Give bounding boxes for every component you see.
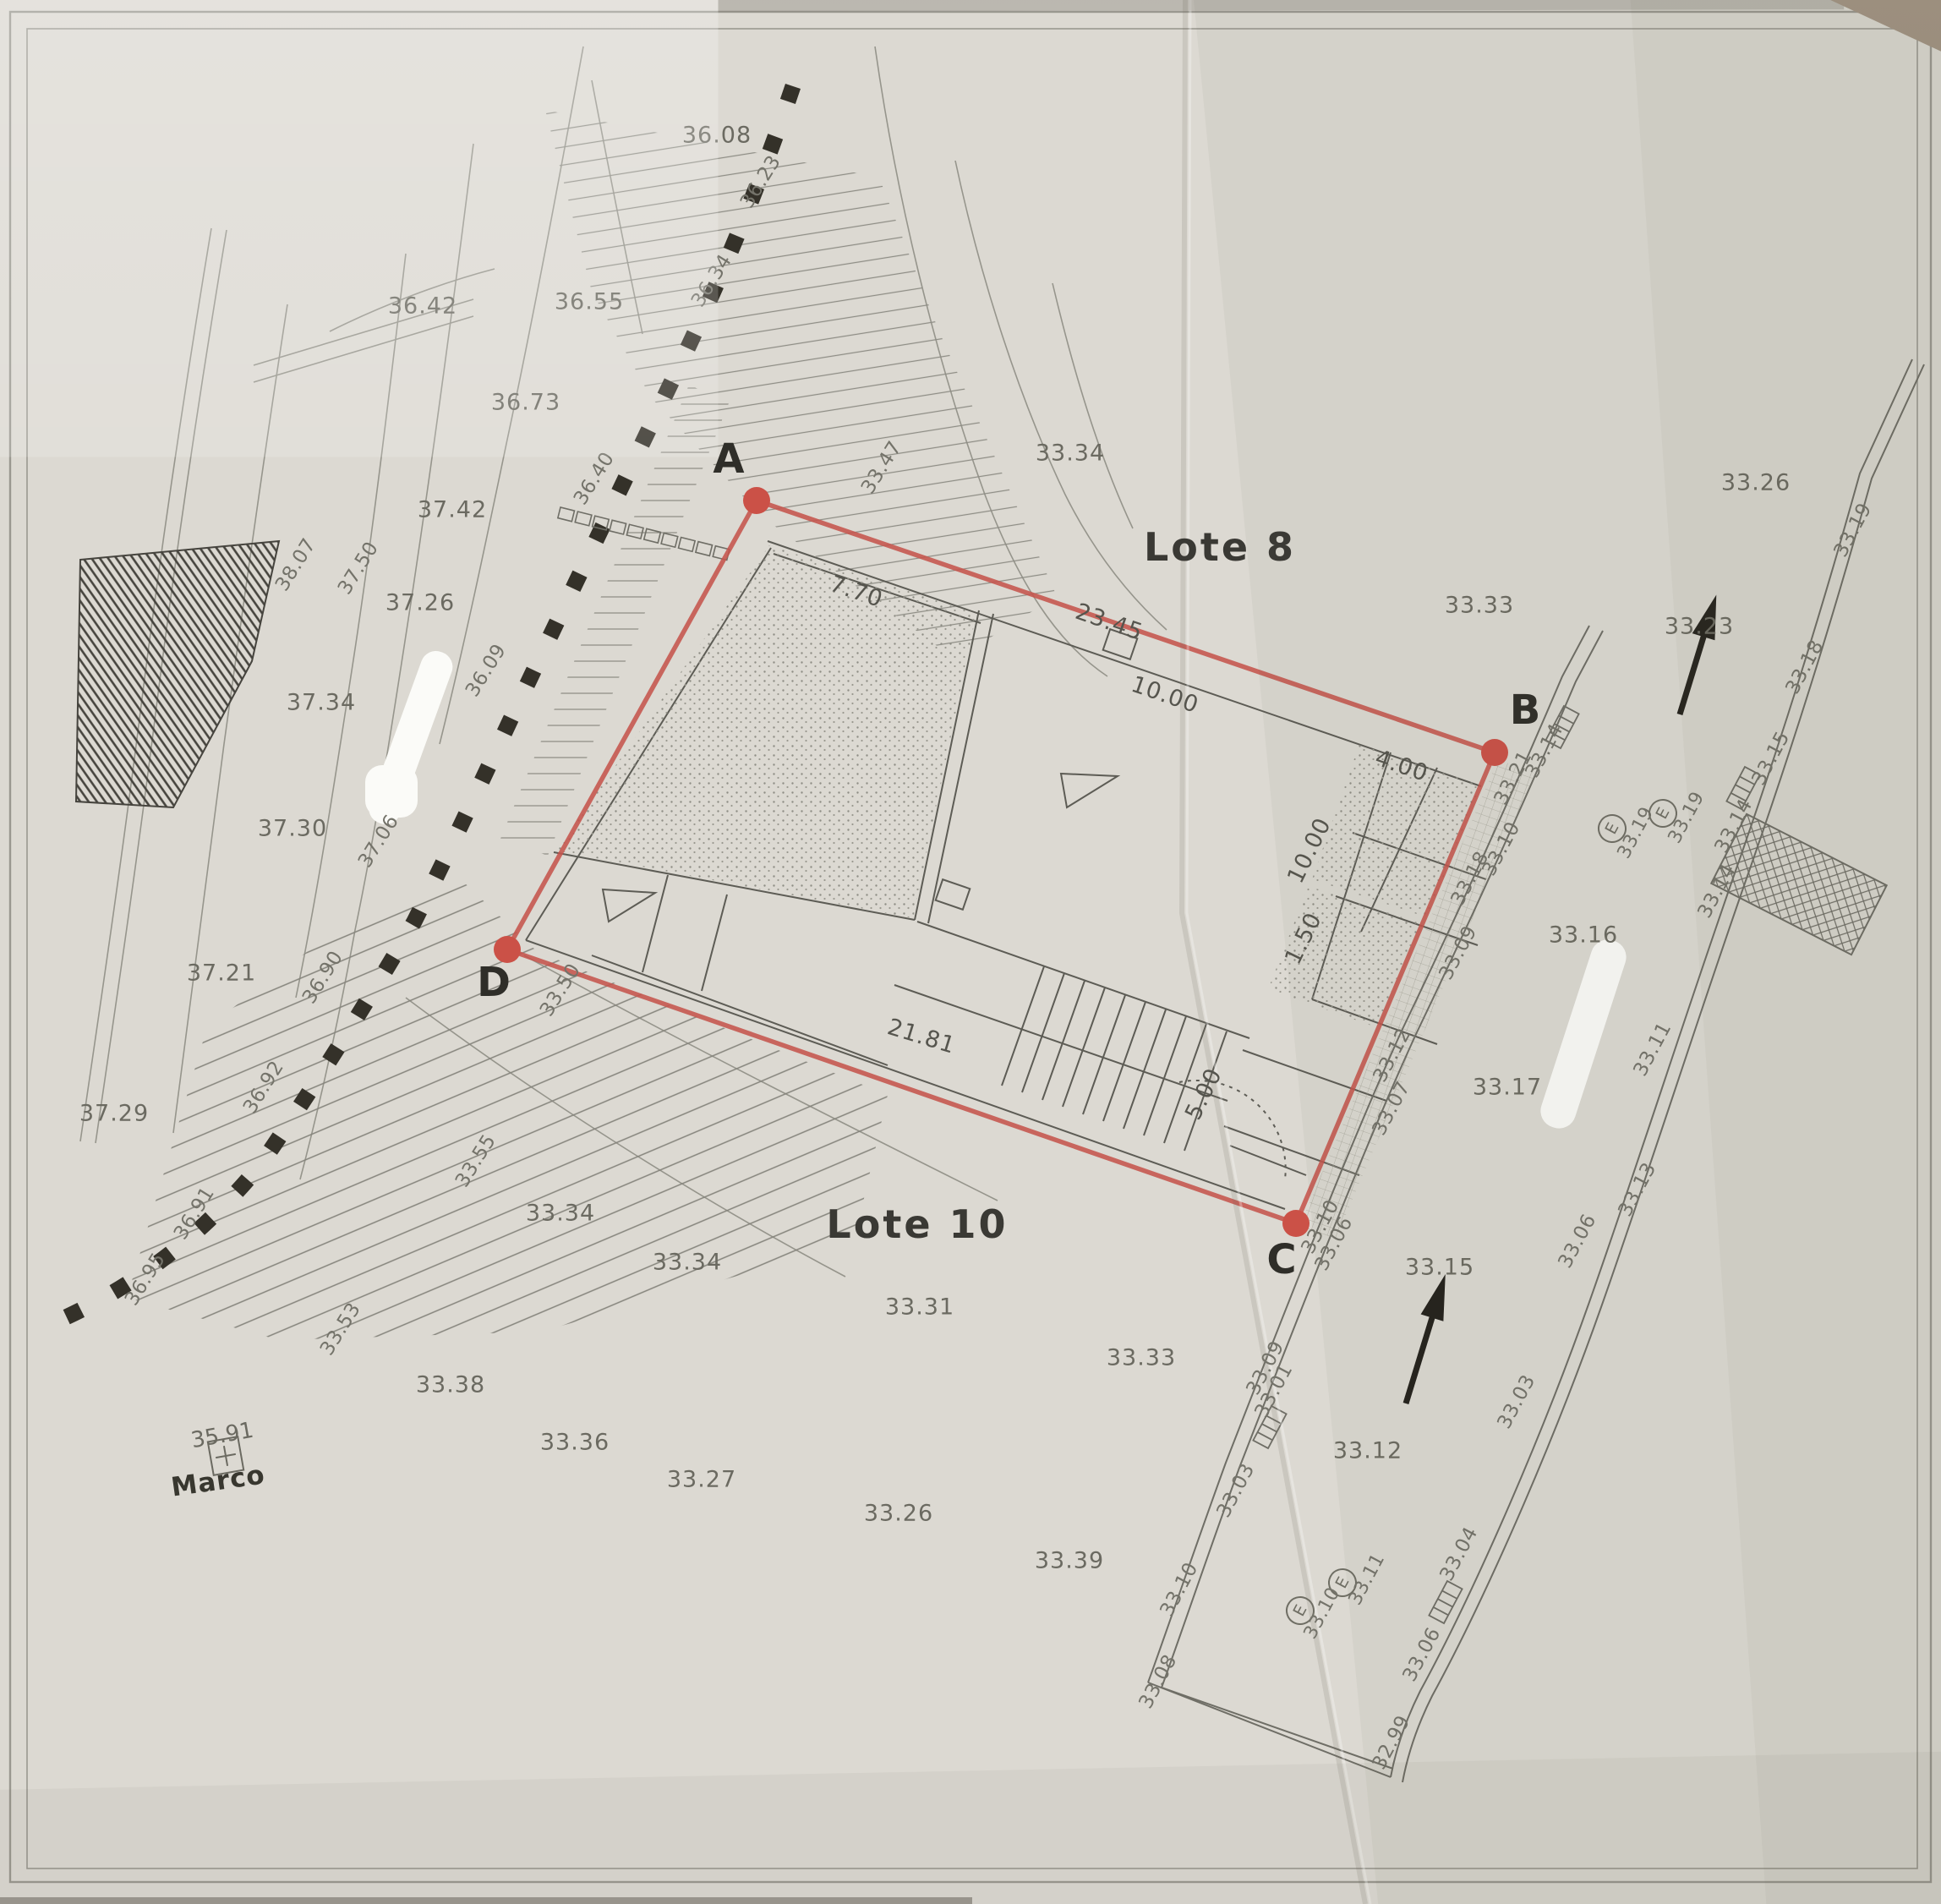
spot-elevation: 33.36: [540, 1430, 610, 1456]
spot-elevation: 33.34: [653, 1250, 722, 1276]
lot-name: Lote 8: [1144, 524, 1296, 570]
sheet-border-frame: [10, 12, 1931, 1882]
spot-elevation: 33.27: [667, 1467, 736, 1493]
spot-elevation: 33.17: [1473, 1075, 1542, 1101]
spot-elevation: 36.08: [682, 123, 752, 149]
vertex-letter: C: [1266, 1236, 1296, 1283]
spot-elevation: 33.34: [526, 1201, 595, 1227]
spot-elevation: 37.29: [79, 1101, 149, 1127]
spot-elevation: 33.16: [1549, 922, 1618, 949]
vertex-letter: A: [713, 435, 744, 483]
spot-elevation: 37.34: [287, 690, 356, 716]
spot-elevation: 33.26: [864, 1501, 933, 1527]
spot-elevation: 37.26: [385, 590, 455, 616]
hatched-building: [76, 541, 279, 807]
spot-elevation: 36.42: [388, 293, 457, 320]
spot-elevation: 33.12: [1333, 1438, 1402, 1464]
photographed-survey-plan: Lote 8Lote 10ABCD23.457.7010.004.0010.00…: [0, 0, 1941, 1904]
lot-name: Lote 10: [826, 1201, 1008, 1247]
vertex-letter: B: [1510, 687, 1541, 734]
spot-elevation: 33.33: [1445, 593, 1514, 619]
spot-elevation: 36.73: [491, 390, 560, 416]
spot-elevation: 37.42: [418, 497, 487, 523]
spot-elevation: 33.38: [416, 1372, 485, 1398]
spot-elevation: 33.15: [1405, 1255, 1474, 1281]
spot-elevation: 33.33: [1107, 1345, 1176, 1371]
spot-elevation: 33.26: [1721, 470, 1791, 496]
spot-elevation: 33.39: [1035, 1548, 1104, 1574]
spot-elevation: 33.31: [885, 1294, 954, 1321]
spot-elevation: 33.23: [1665, 614, 1734, 640]
plan-drawing: [0, 0, 1941, 1904]
spot-elevation: 37.21: [187, 960, 256, 987]
spot-elevation: 33.34: [1036, 440, 1105, 467]
vertex-letter: D: [477, 959, 511, 1006]
spot-elevation: 37.30: [258, 816, 327, 842]
bottom-paper-edge: [0, 1897, 972, 1904]
spot-elevation: 36.55: [555, 289, 624, 315]
stairs: [1002, 966, 1227, 1151]
east-road: [1391, 359, 1924, 1782]
